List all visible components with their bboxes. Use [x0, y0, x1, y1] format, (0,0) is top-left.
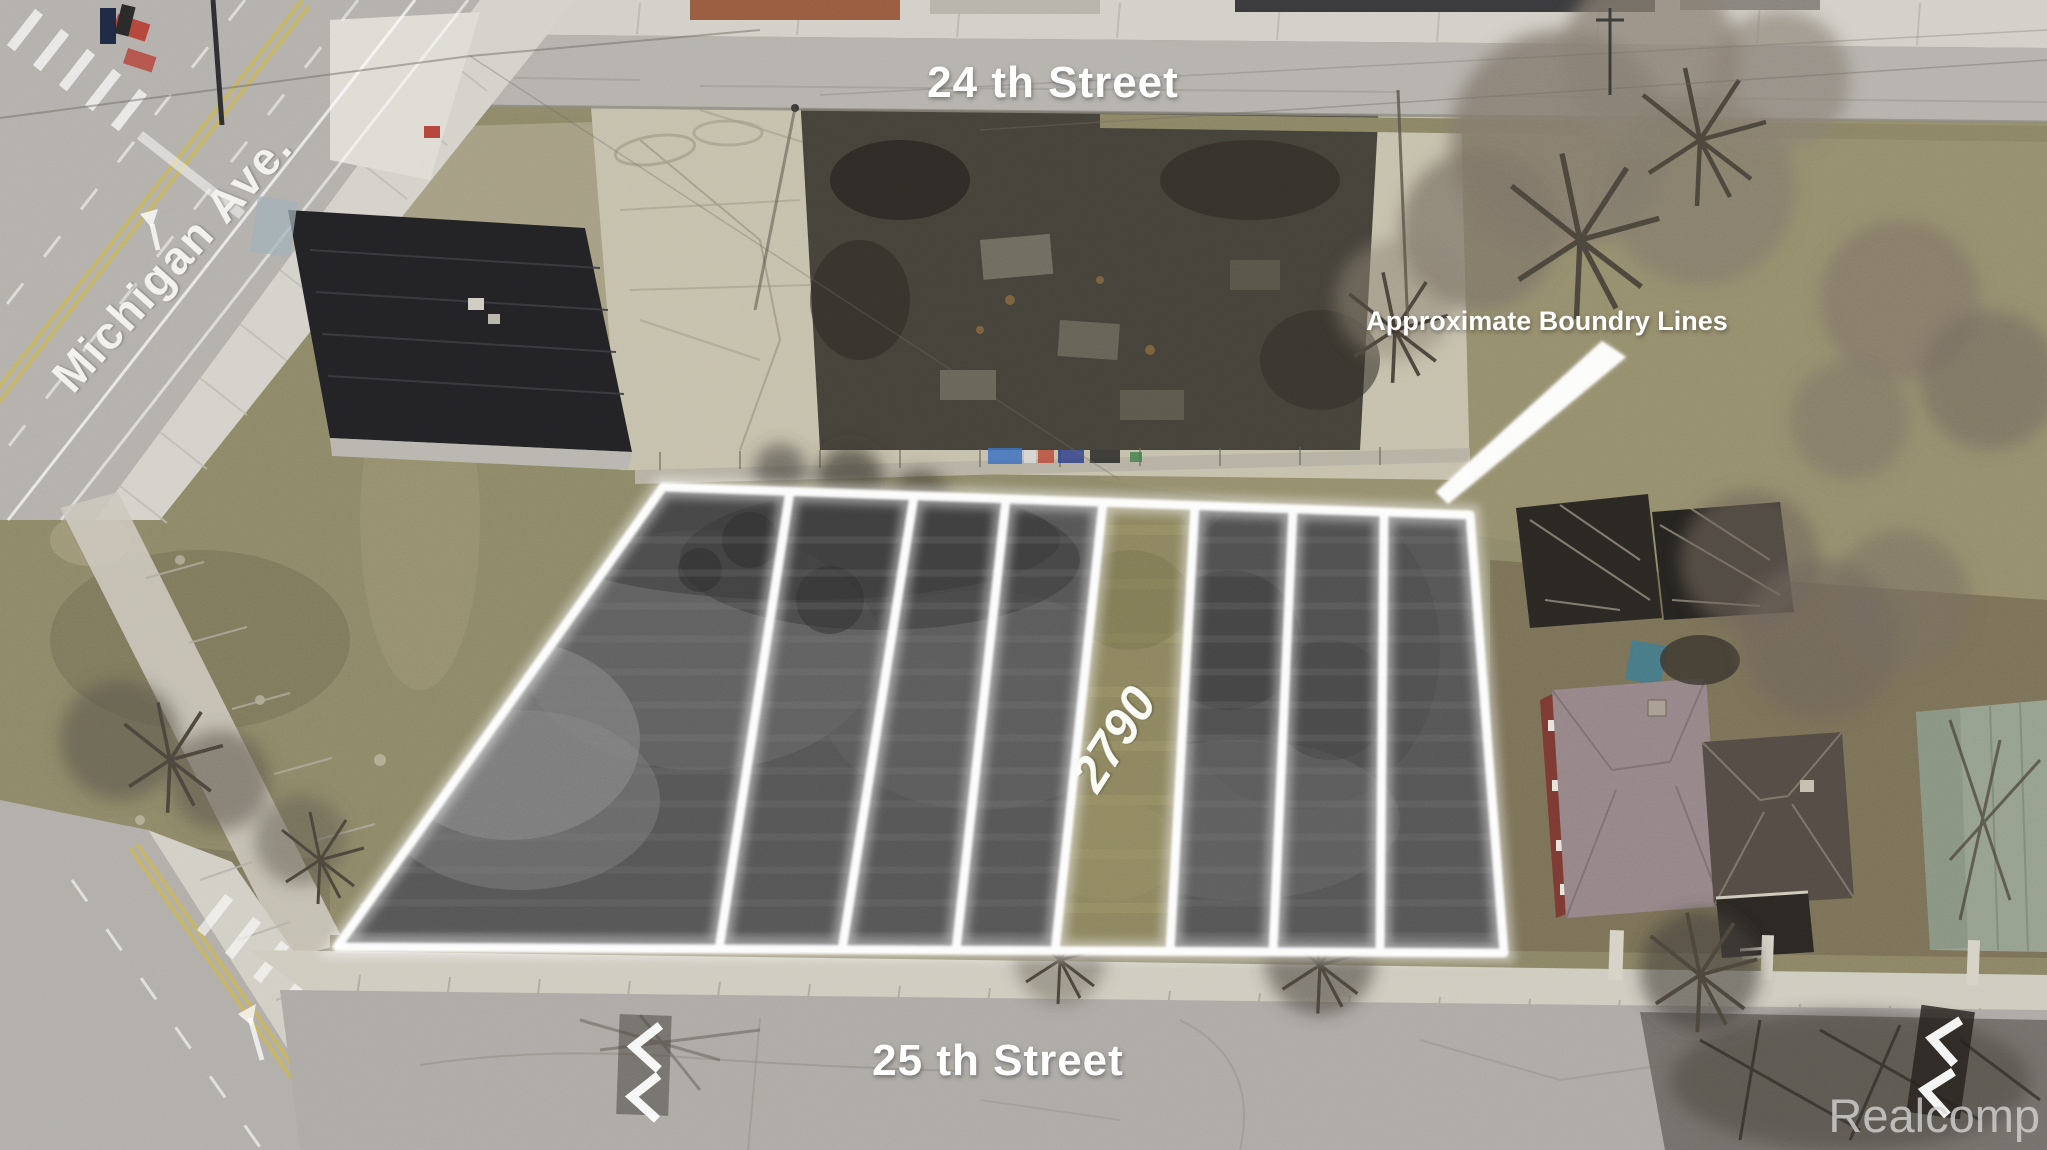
photo-grain-overlay	[0, 0, 2047, 1150]
aerial-photo: Michigan Ave.	[0, 0, 2047, 1150]
